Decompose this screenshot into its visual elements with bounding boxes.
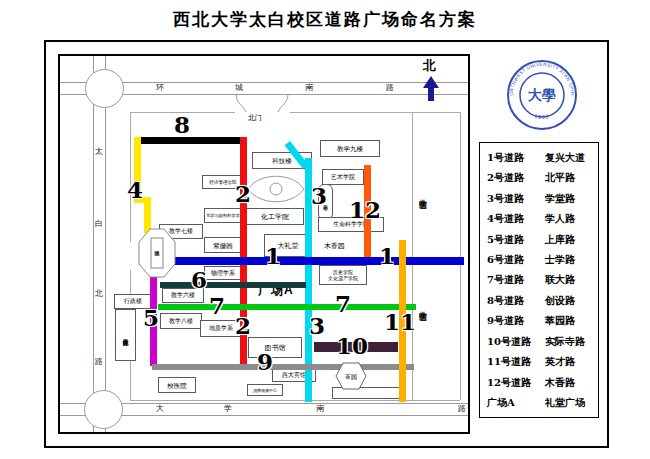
campus-map: 环 城 南 路 太 白 北 路 大 学 南 路 北门 <box>58 54 470 434</box>
cuiyuan-hexagon: 萃园 <box>335 362 367 390</box>
building-chem-engineering: 化工学院 <box>246 208 304 225</box>
legend-road-id: 12号道路 <box>487 377 545 388</box>
outer-frame: 环 城 南 路 太 白 北 路 大 学 南 路 北门 <box>44 40 609 448</box>
muxiang-garden-label: 木香园 <box>324 242 345 250</box>
legend-row: 12号道路木香路 <box>487 377 598 388</box>
north-gate-label: 北门 <box>248 114 262 122</box>
building-service-center: 消费维修中心 <box>247 384 283 396</box>
legend-row: 5号道路上庠路 <box>487 234 598 245</box>
building-campus-hospital: 校医院 <box>158 377 196 393</box>
dorm-area-lower-label: 学生宿舍区 <box>418 304 426 366</box>
legend-row: 4号道路学人路 <box>487 213 598 224</box>
road-number-7-left: 7 <box>206 294 228 318</box>
oval-lawn <box>246 168 306 210</box>
legend-road-id: 8号道路 <box>487 295 545 306</box>
cuiyuan-label: 萃园 <box>345 374 357 381</box>
building-teaching-8: 教学八楼 <box>160 313 202 329</box>
legend-row: 1号道路复兴大道 <box>487 152 598 163</box>
road-number-6: 6 <box>188 268 210 292</box>
road-label-lu3: 路 <box>458 405 466 413</box>
legend-road-name: 创设路 <box>545 295 598 306</box>
fence-bottom <box>130 400 460 401</box>
road-number-2-lower: 2 <box>232 314 254 338</box>
north-gate-funnel <box>230 94 294 113</box>
legend-road-name: 学堂路 <box>545 193 598 204</box>
road-1-bar <box>166 257 464 265</box>
legend-row: 广场A礼堂广场 <box>487 397 598 408</box>
building-energy-institute: 能源化工研究院 <box>115 309 136 361</box>
road-number-5: 5 <box>140 306 162 330</box>
road-number-9: 9 <box>254 350 276 374</box>
legend-road-name: 北平路 <box>545 172 598 183</box>
road-number-8: 8 <box>170 113 194 137</box>
university-seal: NORTHWEST UNIVERSITY XI'AN CHINA · 1902 … <box>506 59 578 131</box>
road-number-3-lower: 3 <box>306 314 328 338</box>
legend-road-name: 礼堂广场 <box>545 397 598 408</box>
roundabout-northwest <box>85 69 124 108</box>
north-arrow-stem <box>428 87 434 101</box>
legend-road-name: 联大路 <box>545 274 598 285</box>
history-college-line2: 文化遗产学院 <box>328 275 358 281</box>
road-label-bai: 白 <box>95 220 103 228</box>
road-label-lu2: 路 <box>95 358 103 366</box>
legend-row: 9号道路萃园路 <box>487 315 598 326</box>
dorm-area-upper-label: 学生宿舍区 <box>418 192 426 254</box>
page-title: 西北大学太白校区道路广场命名方案 <box>0 8 650 31</box>
road-number-1-right: 1 <box>378 244 396 268</box>
legend-road-id: 7号道路 <box>487 274 545 285</box>
road-9-bar <box>152 364 414 370</box>
road-7-bar <box>158 304 416 310</box>
compass-north-label: 北 <box>423 59 436 73</box>
legend-row: 10号道路实际寺路 <box>487 336 598 347</box>
fence-east-inner <box>412 112 413 400</box>
road-6-bar <box>160 282 306 288</box>
legend-road-id: 4号道路 <box>487 213 545 224</box>
legend-road-name: 实际寺路 <box>545 336 598 347</box>
legend-road-name: 木香路 <box>545 377 598 388</box>
building-teaching-9: 教学九楼 <box>320 140 380 157</box>
legend-road-id: 1号道路 <box>487 152 545 163</box>
road-number-2-upper: 2 <box>232 182 254 206</box>
road-label-bei: 北 <box>95 290 103 298</box>
seal-center-text: 大學 <box>528 87 556 103</box>
road-number-12: 12 <box>346 198 384 222</box>
legend-road-id: 广场A <box>487 397 545 408</box>
legend-road-id: 2号道路 <box>487 172 545 183</box>
legend-row: 3号道路学堂路 <box>487 193 598 204</box>
roundabout-southwest <box>84 390 123 429</box>
road-label-nan2: 南 <box>316 405 324 413</box>
road-number-3-upper: 3 <box>308 184 330 208</box>
legend-road-id: 9号道路 <box>487 315 545 326</box>
legend-road-name: 学人路 <box>545 213 598 224</box>
road-label-da: 大 <box>156 405 164 413</box>
legend-road-name: 萃园路 <box>545 315 598 326</box>
legend-row: 7号道路联大路 <box>487 274 598 285</box>
legend-row: 6号道路士学路 <box>487 254 598 265</box>
legend-road-id: 10号道路 <box>487 336 545 347</box>
fountain-octagon: 喷水池 <box>138 228 176 278</box>
legend-row: 8号道路创设路 <box>487 295 598 306</box>
legend-road-name: 士学路 <box>545 254 598 265</box>
road-label-cheng: 城 <box>235 84 243 92</box>
legend-road-name: 复兴大道 <box>545 152 598 163</box>
fence-top-east <box>290 112 460 113</box>
building-art-college: 艺术学院 <box>322 169 364 185</box>
fence-east-outer <box>460 112 461 400</box>
page: 西北大学太白校区道路广场命名方案 环 城 南 路 太 白 北 路 大 学 南 路 <box>0 0 650 459</box>
legend-row: 2号道路北平路 <box>487 172 598 183</box>
road-label-tai: 太 <box>95 148 103 156</box>
legend-row: 11号道路英才路 <box>487 356 598 367</box>
legend-road-id: 3号道路 <box>487 193 545 204</box>
road-label-nan1: 南 <box>305 84 313 92</box>
road-label-xue: 学 <box>224 405 232 413</box>
legend-box: 1号道路复兴大道 2号道路北平路 3号道路学堂路 4号道路学人路 5号道路上庠路… <box>479 142 599 418</box>
road-number-1-left: 1 <box>264 244 282 268</box>
road-number-10: 10 <box>330 334 374 358</box>
legend-road-name: 英才路 <box>545 356 598 367</box>
taibai-north-road <box>93 56 106 432</box>
legend-road-id: 11号道路 <box>487 356 545 367</box>
road-label-lu1: 路 <box>386 84 394 92</box>
road-number-11: 11 <box>382 310 418 334</box>
road-8-bar <box>134 137 247 144</box>
building-history-college: 历史学院 文化遗产学院 <box>319 265 367 285</box>
road-label-huan: 环 <box>156 84 164 92</box>
legend-road-name: 上庠路 <box>545 234 598 245</box>
road-number-4: 4 <box>124 178 146 202</box>
legend-road-id: 6号道路 <box>487 254 545 265</box>
legend-road-id: 5号道路 <box>487 234 545 245</box>
building-wisteria-garden: 紫藤园 <box>204 237 242 253</box>
road-number-7-right: 7 <box>332 292 354 316</box>
